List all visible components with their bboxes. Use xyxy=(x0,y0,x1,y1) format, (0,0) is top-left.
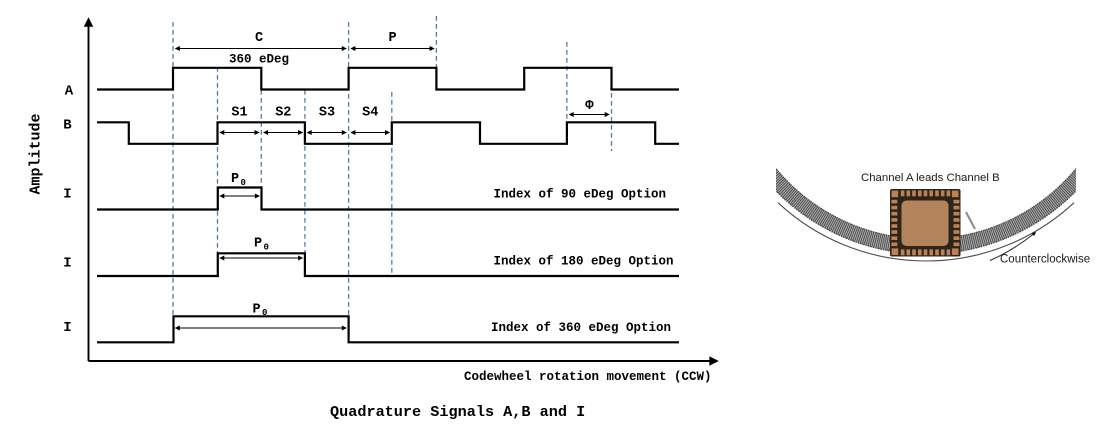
svg-text:I: I xyxy=(63,256,71,272)
svg-text:C: C xyxy=(255,31,263,46)
svg-text:P: P xyxy=(253,302,261,317)
svg-text:B: B xyxy=(63,118,72,134)
svg-text:Channel A leads Channel B: Channel A leads Channel B xyxy=(861,172,1000,184)
svg-text:Amplitude: Amplitude xyxy=(28,113,45,194)
svg-text:Codewheel rotation movement (C: Codewheel rotation movement (CCW) xyxy=(464,370,712,384)
svg-text:Counterclockwise: Counterclockwise xyxy=(1000,254,1090,266)
svg-text:Quadrature Signals A,B and I: Quadrature Signals A,B and I xyxy=(330,403,585,421)
svg-text:Φ: Φ xyxy=(585,98,594,114)
svg-text:I: I xyxy=(63,187,71,203)
svg-text:360 eDeg: 360 eDeg xyxy=(229,53,289,67)
svg-text:0: 0 xyxy=(241,178,246,188)
svg-text:S3: S3 xyxy=(319,106,335,121)
svg-text:P: P xyxy=(254,237,262,252)
svg-text:Index of 360 eDeg Option: Index of 360 eDeg Option xyxy=(491,321,671,335)
svg-text:S2: S2 xyxy=(275,106,291,121)
svg-text:Index of 180 eDeg Option: Index of 180 eDeg Option xyxy=(494,255,674,269)
svg-text:S1: S1 xyxy=(231,106,247,121)
svg-text:I: I xyxy=(63,320,71,336)
svg-text:Index of 90 eDeg Option: Index of 90 eDeg Option xyxy=(494,188,667,202)
svg-text:A: A xyxy=(65,84,74,100)
svg-text:P: P xyxy=(388,31,396,46)
svg-text:S4: S4 xyxy=(362,106,378,121)
svg-text:0: 0 xyxy=(264,242,269,252)
svg-text:P: P xyxy=(231,172,239,187)
